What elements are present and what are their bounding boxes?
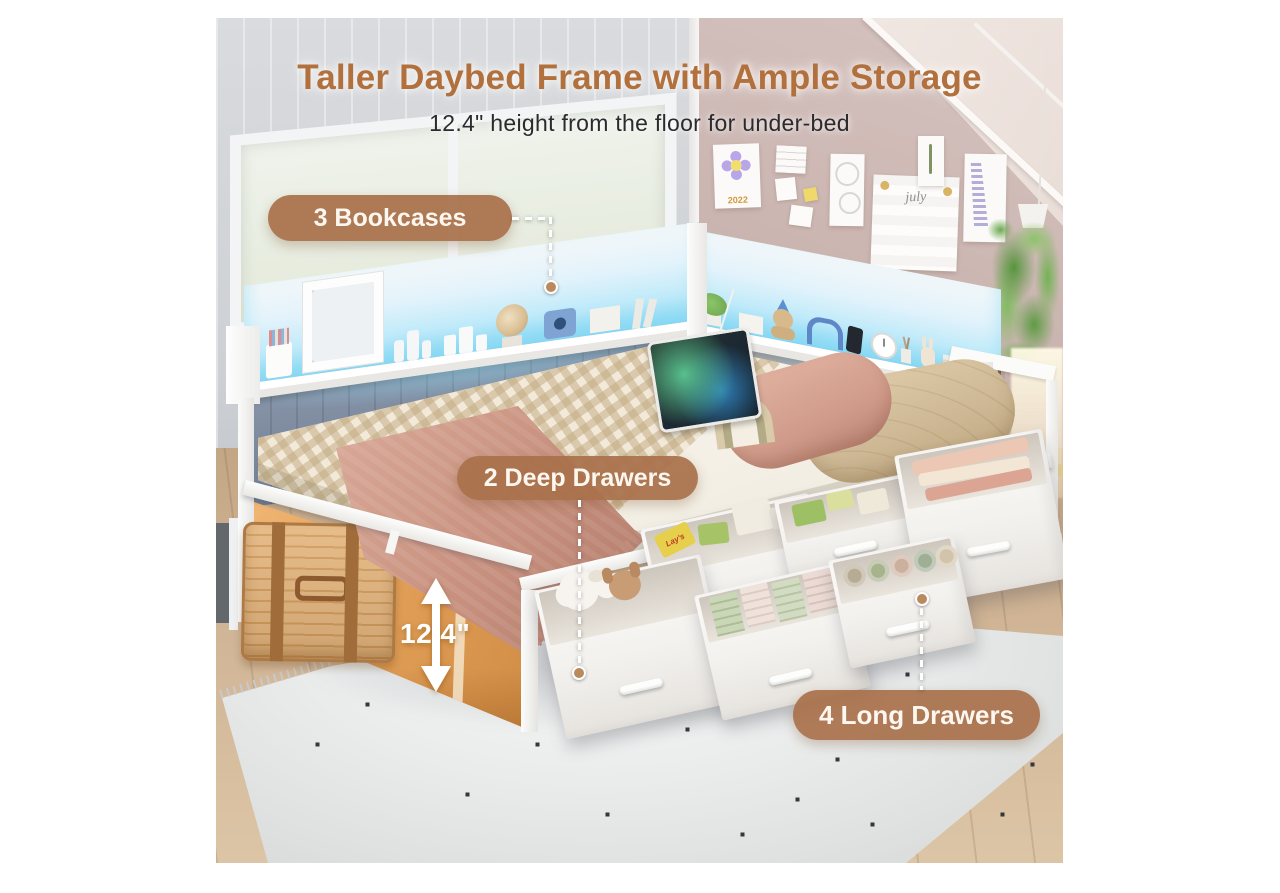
arrow-up-icon xyxy=(421,578,451,604)
arrow-down-icon xyxy=(421,666,451,692)
callout-long-drawers: 4 Long Drawers xyxy=(793,690,1040,740)
gramophone-horn xyxy=(496,302,528,338)
pens xyxy=(269,328,289,347)
decor-bottle xyxy=(394,340,404,363)
plush-toy xyxy=(771,307,797,342)
callout-deep-drawers: 2 Deep Drawers xyxy=(457,456,698,500)
callout-deep-drawers-label: 2 Deep Drawers xyxy=(484,464,672,493)
wall-note xyxy=(775,145,806,174)
gramophone-decor xyxy=(496,308,530,347)
figurine xyxy=(459,326,473,354)
frame-art xyxy=(312,282,374,363)
toy-camera xyxy=(544,307,576,339)
height-value: 12.4" xyxy=(400,618,470,650)
product-photo: 2022 july xyxy=(216,18,1063,863)
page-title: Taller Daybed Frame with Ample Storage xyxy=(216,58,1063,98)
sticky-note xyxy=(803,187,818,202)
snack-pack xyxy=(825,489,854,512)
callout-connector xyxy=(549,217,552,281)
botanical-print xyxy=(918,136,944,186)
callout-dot xyxy=(572,666,586,680)
potted-plant xyxy=(705,312,721,327)
flower-icon xyxy=(730,160,741,171)
callout-dot xyxy=(544,280,558,294)
rolled-towel xyxy=(889,553,915,579)
rolled-towel xyxy=(865,558,891,584)
decor-bottle xyxy=(422,340,431,359)
alarm-clock xyxy=(871,330,897,361)
sticky-note xyxy=(775,177,797,201)
drawer-handle xyxy=(768,667,813,686)
planner-month-label: july xyxy=(873,189,960,208)
callout-dot xyxy=(915,592,929,606)
wall-planner: july xyxy=(870,175,959,272)
wall-calendar-2022: 2022 xyxy=(713,143,761,209)
sticky-note xyxy=(789,205,814,228)
reed-diffuser xyxy=(901,348,911,364)
drawer-handle xyxy=(885,619,930,637)
callout-connector xyxy=(578,500,581,668)
planner-pin xyxy=(880,181,889,190)
folded-clothes xyxy=(709,591,745,636)
storage-box xyxy=(590,305,620,333)
drawer-handle xyxy=(966,540,1011,557)
storage-box xyxy=(731,499,775,537)
bed-corner-post xyxy=(521,590,538,732)
picture-frame xyxy=(302,270,384,374)
chips-bag: Lay's xyxy=(653,521,696,559)
callout-connector xyxy=(920,608,923,690)
height-measurement: 12.4" xyxy=(396,574,516,704)
page-subtitle: 12.4" height from the floor for under-be… xyxy=(216,110,1063,137)
trunk-handle xyxy=(295,576,349,602)
folded-clothes xyxy=(739,582,775,627)
snack-pack xyxy=(856,488,890,516)
pen-cup xyxy=(266,341,292,379)
abstract-poster xyxy=(829,154,864,227)
figurine xyxy=(476,334,487,352)
chips-bag-green xyxy=(697,522,729,546)
door-trim xyxy=(229,518,238,630)
snack-pack xyxy=(791,499,827,527)
tablet xyxy=(646,327,762,434)
bookcase-end-panel-left xyxy=(226,326,260,404)
callout-connector xyxy=(512,217,552,220)
drawer-handle xyxy=(619,677,664,695)
calendar-year-label: 2022 xyxy=(715,194,761,206)
smartphone xyxy=(846,325,864,355)
book xyxy=(643,298,658,327)
callout-long-drawers-label: 4 Long Drawers xyxy=(819,700,1014,731)
decor-bottle xyxy=(407,329,419,361)
rolled-towel xyxy=(934,543,960,569)
figurine xyxy=(444,334,456,356)
rolled-towel xyxy=(912,548,938,574)
headphones xyxy=(807,315,843,351)
callout-bookcases-label: 3 Bookcases xyxy=(314,204,467,233)
rolled-towel xyxy=(842,563,868,589)
callout-bookcases: 3 Bookcases xyxy=(268,195,512,241)
folded-clothes xyxy=(771,577,807,622)
plush-bunny xyxy=(606,567,644,603)
